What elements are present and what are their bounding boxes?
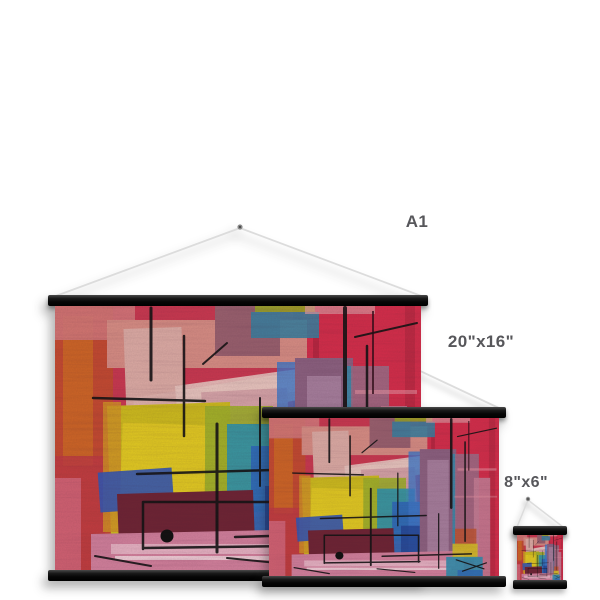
- nail-icon-center: [239, 226, 241, 228]
- hanger-bar-top: [513, 526, 567, 535]
- artwork-canvas-large: [55, 306, 421, 570]
- hanging-string-large: [0, 0, 600, 600]
- print-medium: [0, 0, 600, 600]
- nail-icon: [526, 497, 530, 501]
- print-large: [0, 0, 600, 600]
- string-lines: [267, 354, 501, 409]
- hanger-bar-bottom: [48, 570, 428, 581]
- hanger-bar-top: [48, 295, 428, 306]
- size-label-small: 8"x6": [504, 474, 548, 492]
- hanger-bar-bottom: [513, 580, 567, 589]
- nail-icon-center: [527, 498, 529, 500]
- hanger-bar-top: [262, 407, 506, 418]
- nail-icon: [237, 224, 242, 229]
- hanging-string-small: [0, 0, 600, 600]
- hanging-string-medium: [0, 0, 600, 600]
- print-small: [0, 0, 600, 600]
- hanger-bar-bottom: [262, 576, 506, 587]
- size-label-medium: 20"x16": [448, 332, 514, 352]
- size-label-large: A1: [406, 212, 429, 232]
- size-comparison-image: A1 20"x16" 8"x6": [0, 0, 600, 600]
- artwork-canvas-small: [517, 535, 563, 580]
- artwork-canvas-medium: [269, 418, 499, 576]
